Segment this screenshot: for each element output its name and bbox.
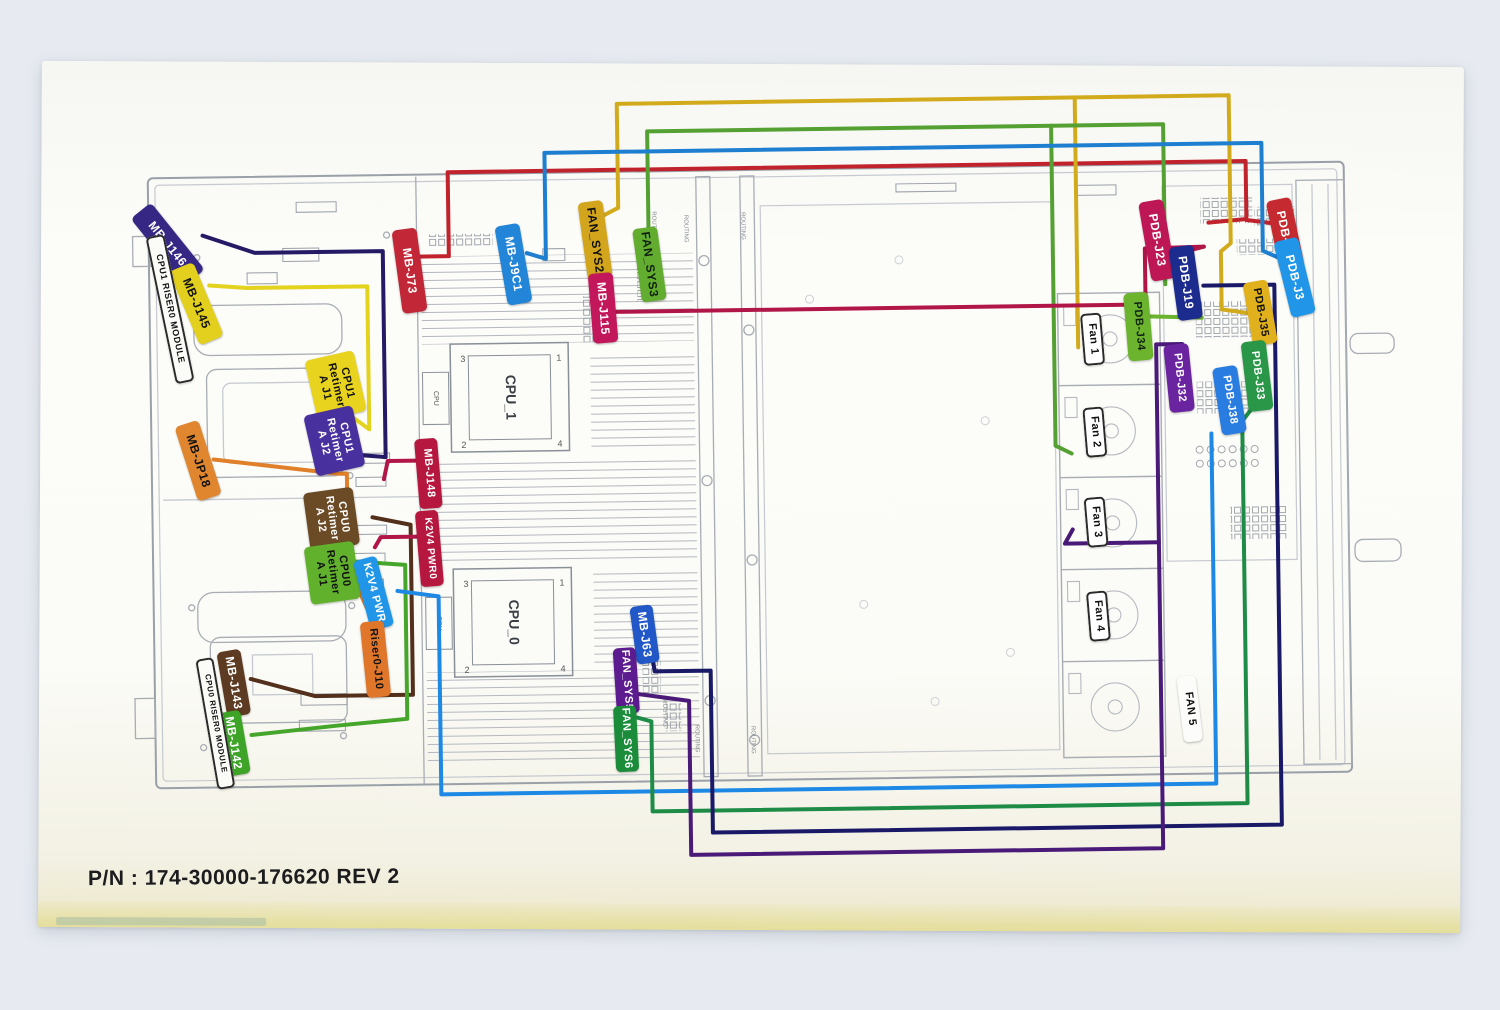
cpu1-socket-label: CPU_1 xyxy=(503,375,520,421)
cpu1-small-label: CPU xyxy=(432,391,439,406)
svg-text:ROUTING: ROUTING xyxy=(693,725,699,753)
wire-mb-j146-to-cpu1-retimer-j2 xyxy=(203,233,386,459)
cable-routes xyxy=(201,95,1293,862)
svg-text:ROUTING: ROUTING xyxy=(749,726,755,754)
cpu0-socket xyxy=(425,568,572,678)
svg-text:3: 3 xyxy=(463,579,468,589)
svg-text:ROUTING: ROUTING xyxy=(661,699,667,727)
svg-text:2: 2 xyxy=(465,665,470,675)
wire-fan-sys3-branch-fan2 xyxy=(1051,126,1072,454)
photo-of-cable-routing-diagram: { "footer": { "part_number": "P/N : 174-… xyxy=(0,0,1500,1000)
svg-text:ROUTING: ROUTING xyxy=(682,215,688,243)
cpu0-socket-label: CPU_0 xyxy=(506,600,523,646)
diagram-scene: CPU_1 CPU 1 4 3 2 CPU_0 CPU 1 4 3 2 xyxy=(0,0,1500,1010)
chassis-line-art: CPU_1 CPU 1 4 3 2 CPU_0 CPU 1 4 3 2 xyxy=(0,0,1500,1010)
svg-text:ROUTING: ROUTING xyxy=(739,212,745,240)
wire-mb-j143-to-cpu0-retimer-j2 xyxy=(248,517,412,697)
svg-text:1: 1 xyxy=(559,578,564,588)
svg-text:3: 3 xyxy=(460,354,465,364)
part-number-text: P/N : 174-30000-176620 REV 2 xyxy=(88,865,400,891)
wire-riser0-j10-leader xyxy=(349,567,374,623)
wire-fan-sys5-branch-fan3 xyxy=(1065,528,1159,543)
svg-text:2: 2 xyxy=(461,440,466,450)
middle-tray-details xyxy=(805,254,1015,707)
svg-text:4: 4 xyxy=(557,439,562,449)
fan-cage xyxy=(1057,292,1165,757)
svg-text:ROUTING: ROUTING xyxy=(650,211,656,239)
wire-pdb-j34-leader xyxy=(1148,316,1202,319)
svg-text:4: 4 xyxy=(561,664,566,674)
wire-mb-j148-stub xyxy=(384,461,418,479)
svg-text:1: 1 xyxy=(556,353,561,363)
cpu1-socket xyxy=(422,343,569,453)
